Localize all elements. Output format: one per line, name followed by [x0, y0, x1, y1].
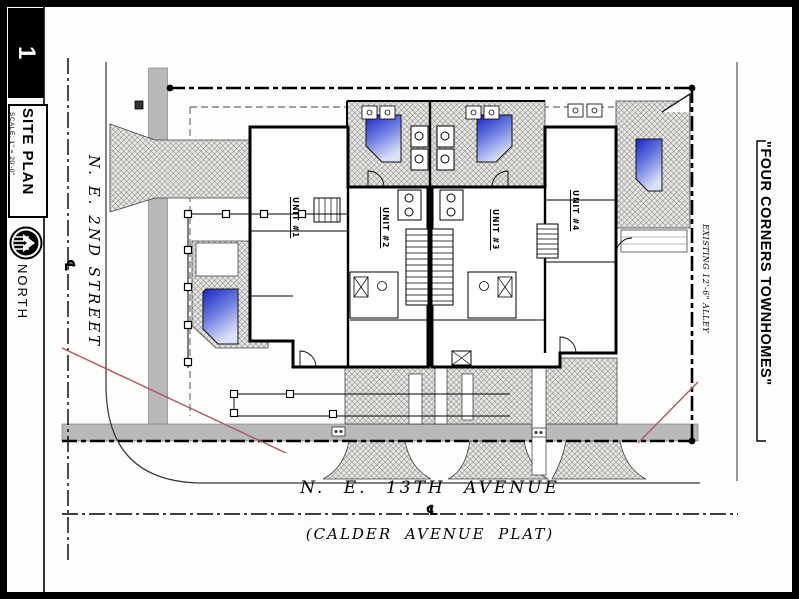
street-name-south: N. E. 13TH AVENUE [230, 478, 630, 498]
plat-label: (CALDER AVENUE PLAT) [230, 525, 630, 543]
unit-label-3: UNIT #3 [491, 209, 500, 269]
closet [452, 351, 471, 365]
equipment-pad-east [621, 230, 687, 252]
project-name: "FOUR CORNERS TOWNHOMES" [757, 141, 773, 459]
site-plan-drawing [0, 0, 799, 599]
driveway-apron-3 [552, 441, 646, 479]
sheet-number-box: 1 [8, 8, 44, 98]
pool-east [636, 139, 662, 191]
street-name-west: N. E. 2ND STREET [85, 155, 103, 400]
centerline-symbol-west: ℄ [59, 259, 77, 277]
sheet-title: SITE PLAN [19, 108, 36, 212]
unit-label-4: UNIT #4 [571, 190, 580, 250]
sheet-scale: SCALE: 1" = 20'-0" [8, 112, 15, 212]
unit-label-1: UNIT #1 [291, 197, 300, 257]
sheet-number: 1 [12, 46, 40, 59]
driveway-apron-1 [323, 441, 431, 479]
alley-label: EXISTING 12'-6" ALLEY [701, 224, 710, 360]
equipment-pad-west [196, 243, 238, 276]
site-plan-sheet: 1 SITE PLAN SCALE: 1" = 20'-0" NORTH "FO… [0, 0, 799, 599]
west-driveway [110, 124, 250, 212]
north-label: NORTH [15, 264, 30, 348]
north-arrow-icon [9, 224, 43, 262]
centerline-symbol-south: ℄ [422, 503, 442, 521]
unit-label-2: UNIT #2 [381, 207, 390, 267]
